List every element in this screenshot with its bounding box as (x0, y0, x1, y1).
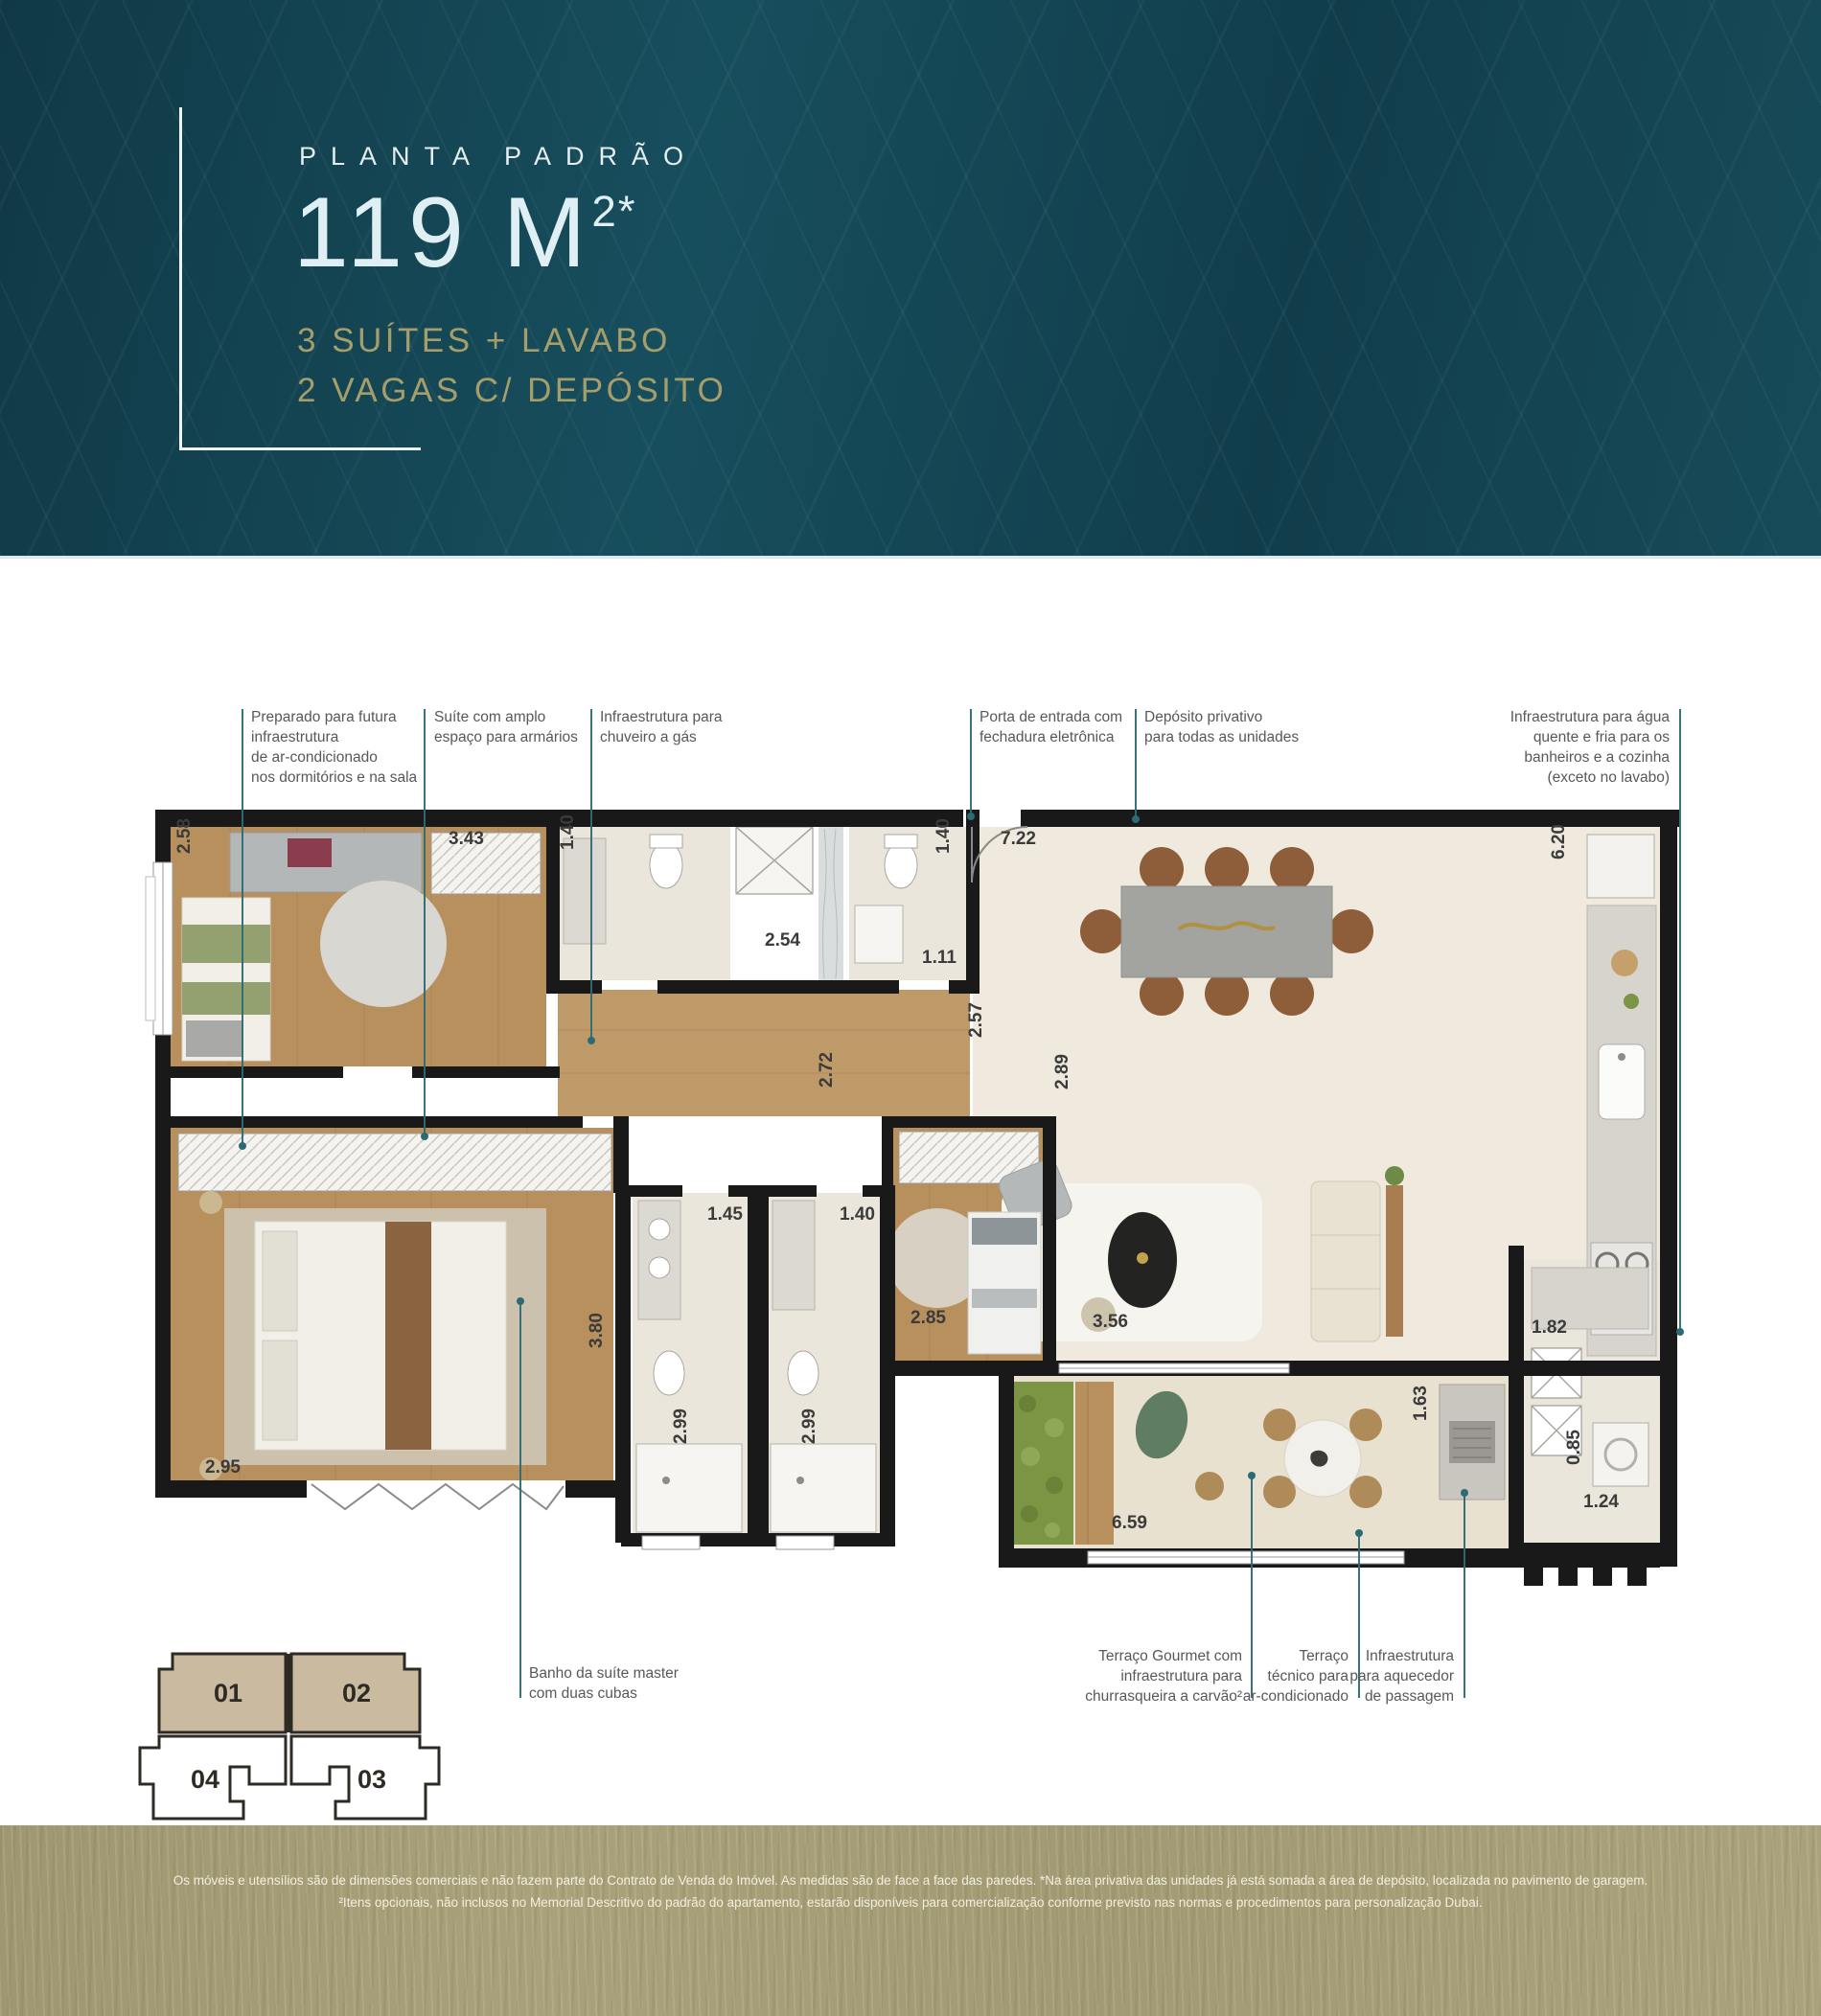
dimension-label: 2.54 (765, 930, 800, 951)
dimension-label: 2.72 (817, 1052, 837, 1088)
dimension-label: 6.20 (1549, 824, 1569, 859)
area-superscript: 2* (591, 187, 636, 236)
annotation-line: de ar-condicionado (251, 747, 481, 767)
dimension-label: 1.63 (1411, 1386, 1431, 1421)
subtitle-suites: 3 SUÍTES + LAVABO (297, 322, 671, 360)
dimension-label: 2.57 (966, 1002, 986, 1038)
leader-dot (588, 1037, 595, 1044)
footer-band: Os móveis e utensílios são de dimensões … (0, 1825, 1821, 2016)
area-value: 119 M (293, 177, 591, 288)
header-band: PLANTA PADRÃO 119 M2* 3 SUÍTES + LAVABO … (0, 0, 1821, 559)
leader-dot (1248, 1472, 1256, 1479)
dimension-label: 2.89 (1052, 1054, 1072, 1089)
dimension-label: 3.43 (449, 829, 484, 849)
plan-annotation: Porta de entrada comfechadura eletrônica (980, 707, 1171, 747)
annotation-line: fechadura eletrônica (980, 727, 1171, 747)
leader-dot (1461, 1489, 1468, 1497)
plan-annotation: Infraestruturapara aquecedorde passagem (1310, 1646, 1454, 1707)
keyplan-unit-label: 04 (191, 1765, 219, 1794)
page-title: 119 M2* (293, 178, 637, 287)
leader-line (1464, 1493, 1465, 1698)
annotation-line: quente e fria para os (1420, 727, 1670, 747)
annotation-line: espaço para armários (434, 727, 626, 747)
dimension-label: 2.85 (910, 1308, 946, 1328)
annotation-line: de passagem (1310, 1686, 1454, 1707)
dimension-label: 2.99 (671, 1409, 691, 1444)
title-bracket-horizontal (179, 447, 421, 450)
annotation-line: Suíte com amplo (434, 707, 626, 727)
terrace-garden (1012, 1382, 1114, 1545)
leader-line (1135, 709, 1137, 819)
dimension-label: 6.59 (1112, 1513, 1147, 1533)
plan-type-label: PLANTA PADRÃO (299, 142, 698, 172)
dimension-label: 1.45 (707, 1204, 743, 1225)
annotation-line: com duas cubas (529, 1684, 740, 1704)
keyplan-unit-label: 03 (357, 1765, 386, 1794)
dimension-label: 1.82 (1532, 1317, 1567, 1338)
annotation-line: banheiros e a cozinha (1420, 747, 1670, 767)
annotation-line: Depósito privativo (1144, 707, 1346, 727)
leader-dot (239, 1142, 246, 1150)
legal-line-2: ²Itens opcionais, não inclusos no Memori… (0, 1891, 1821, 1913)
leader-line (242, 709, 243, 1146)
leader-dot (967, 813, 975, 820)
dimension-label: 1.40 (840, 1204, 875, 1225)
plan-annotation: Banho da suíte mastercom duas cubas (529, 1663, 740, 1704)
leader-line (519, 1301, 521, 1698)
plan-annotation: Depósito privativopara todas as unidades (1144, 707, 1346, 747)
living-set (996, 1157, 1404, 1341)
annotation-line: Banho da suíte master (529, 1663, 740, 1684)
plan-annotation: Suíte com amploespaço para armários (434, 707, 626, 747)
annotation-line: Infraestrutura para água (1420, 707, 1670, 727)
subtitle-parking: 2 VAGAS C/ DEPÓSITO (297, 372, 726, 410)
keyplan-unit-label: 02 (342, 1679, 371, 1707)
leader-line (970, 709, 972, 816)
keyplan-unit-label: 01 (214, 1679, 242, 1707)
legal-text: Os móveis e utensílios são de dimensões … (0, 1869, 1821, 1913)
dimension-label: 2.95 (205, 1457, 241, 1478)
leader-dot (1132, 815, 1140, 823)
dimension-label: 1.40 (934, 818, 954, 854)
leader-line (590, 709, 592, 1041)
plan-annotation: Infraestrutura para águaquente e fria pa… (1420, 707, 1670, 788)
leader-dot (1676, 1328, 1684, 1336)
leader-line (1679, 709, 1681, 1332)
dimension-label: 1.24 (1583, 1492, 1619, 1512)
dimension-label: 3.80 (587, 1313, 607, 1348)
annotation-line: para todas as unidades (1144, 727, 1346, 747)
leader-dot (421, 1133, 428, 1140)
floor-plan-svg: 2.583.431.402.541.111.407.226.202.572.72… (144, 810, 1687, 1605)
annotation-line: Infraestrutura para (600, 707, 772, 727)
master-furniture (199, 1191, 546, 1480)
annotation-line: Porta de entrada com (980, 707, 1171, 727)
annotation-line: nos dormitórios e na sala (251, 767, 481, 788)
keyplan: 01020304 (115, 1640, 498, 1824)
dimension-label: 3.56 (1093, 1312, 1128, 1332)
floor-plan: 2.583.431.402.541.111.407.226.202.572.72… (144, 810, 1687, 1605)
dimension-label: 1.11 (922, 948, 957, 968)
leader-dot (1355, 1529, 1363, 1537)
dimension-label: 2.99 (799, 1409, 819, 1444)
dimension-label: 7.22 (1001, 829, 1036, 849)
leader-line (424, 709, 426, 1136)
title-bracket-vertical (179, 107, 182, 450)
dimension-label: 2.58 (174, 818, 195, 854)
annotation-line: (exceto no lavabo) (1420, 767, 1670, 788)
annotation-line: Infraestrutura (1310, 1646, 1454, 1666)
brochure-page: PLANTA PADRÃO 119 M2* 3 SUÍTES + LAVABO … (0, 0, 1821, 2016)
legal-line-1: Os móveis e utensílios são de dimensões … (0, 1869, 1821, 1891)
dimension-label: 0.85 (1564, 1430, 1584, 1465)
annotation-line: chuveiro a gás (600, 727, 772, 747)
annotation-line: para aquecedor (1310, 1666, 1454, 1686)
plan-annotation: Infraestrutura parachuveiro a gás (600, 707, 772, 747)
leader-dot (517, 1297, 524, 1305)
dimension-label: 1.40 (558, 814, 578, 850)
